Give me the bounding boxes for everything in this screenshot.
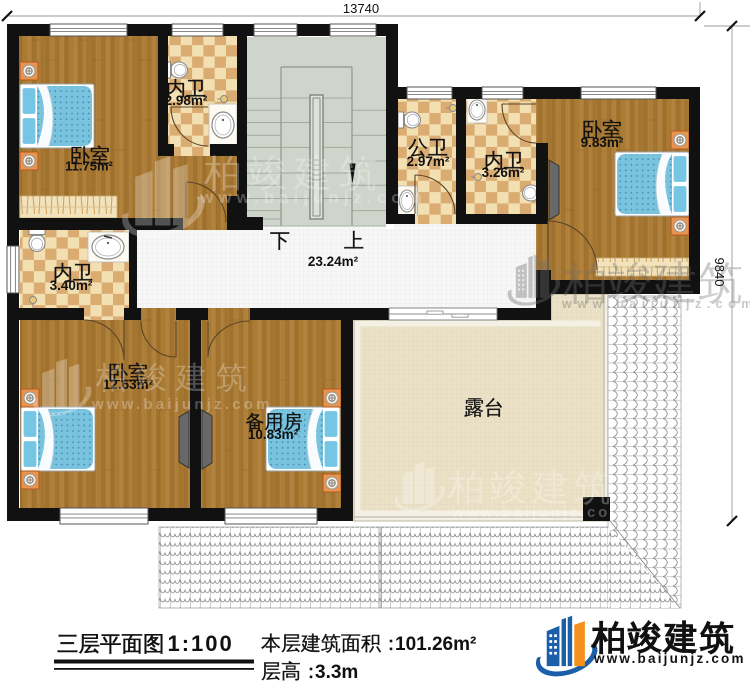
svg-text:3.26m²: 3.26m² — [482, 165, 525, 180]
svg-text:3.40m²: 3.40m² — [50, 278, 93, 293]
svg-text:www.baijunjz.com: www.baijunjz.com — [561, 297, 750, 311]
svg-text:23.24m²: 23.24m² — [308, 254, 359, 269]
svg-text:www.baijunjz.com: www.baijunjz.com — [593, 651, 746, 666]
svg-text:3.3m: 3.3m — [315, 662, 358, 681]
svg-text:101.26m²: 101.26m² — [395, 634, 476, 655]
svg-text:10.83m²: 10.83m² — [248, 427, 299, 442]
svg-text:www.baijunjz.com: www.baijunjz.com — [91, 396, 273, 413]
svg-text:www.baijunjz.com: www.baijunjz.com — [451, 504, 626, 521]
svg-text:www.baijunjz.com: www.baijunjz.com — [199, 188, 427, 207]
svg-text:13740: 13740 — [343, 1, 379, 16]
svg-text:1:100: 1:100 — [168, 631, 234, 656]
svg-text:9.83m²: 9.83m² — [581, 135, 624, 150]
svg-text:9840: 9840 — [712, 258, 727, 287]
svg-text:2.97m²: 2.97m² — [407, 154, 450, 169]
svg-text:11.75m²: 11.75m² — [65, 159, 113, 174]
svg-text:2.98m²: 2.98m² — [165, 93, 208, 108]
